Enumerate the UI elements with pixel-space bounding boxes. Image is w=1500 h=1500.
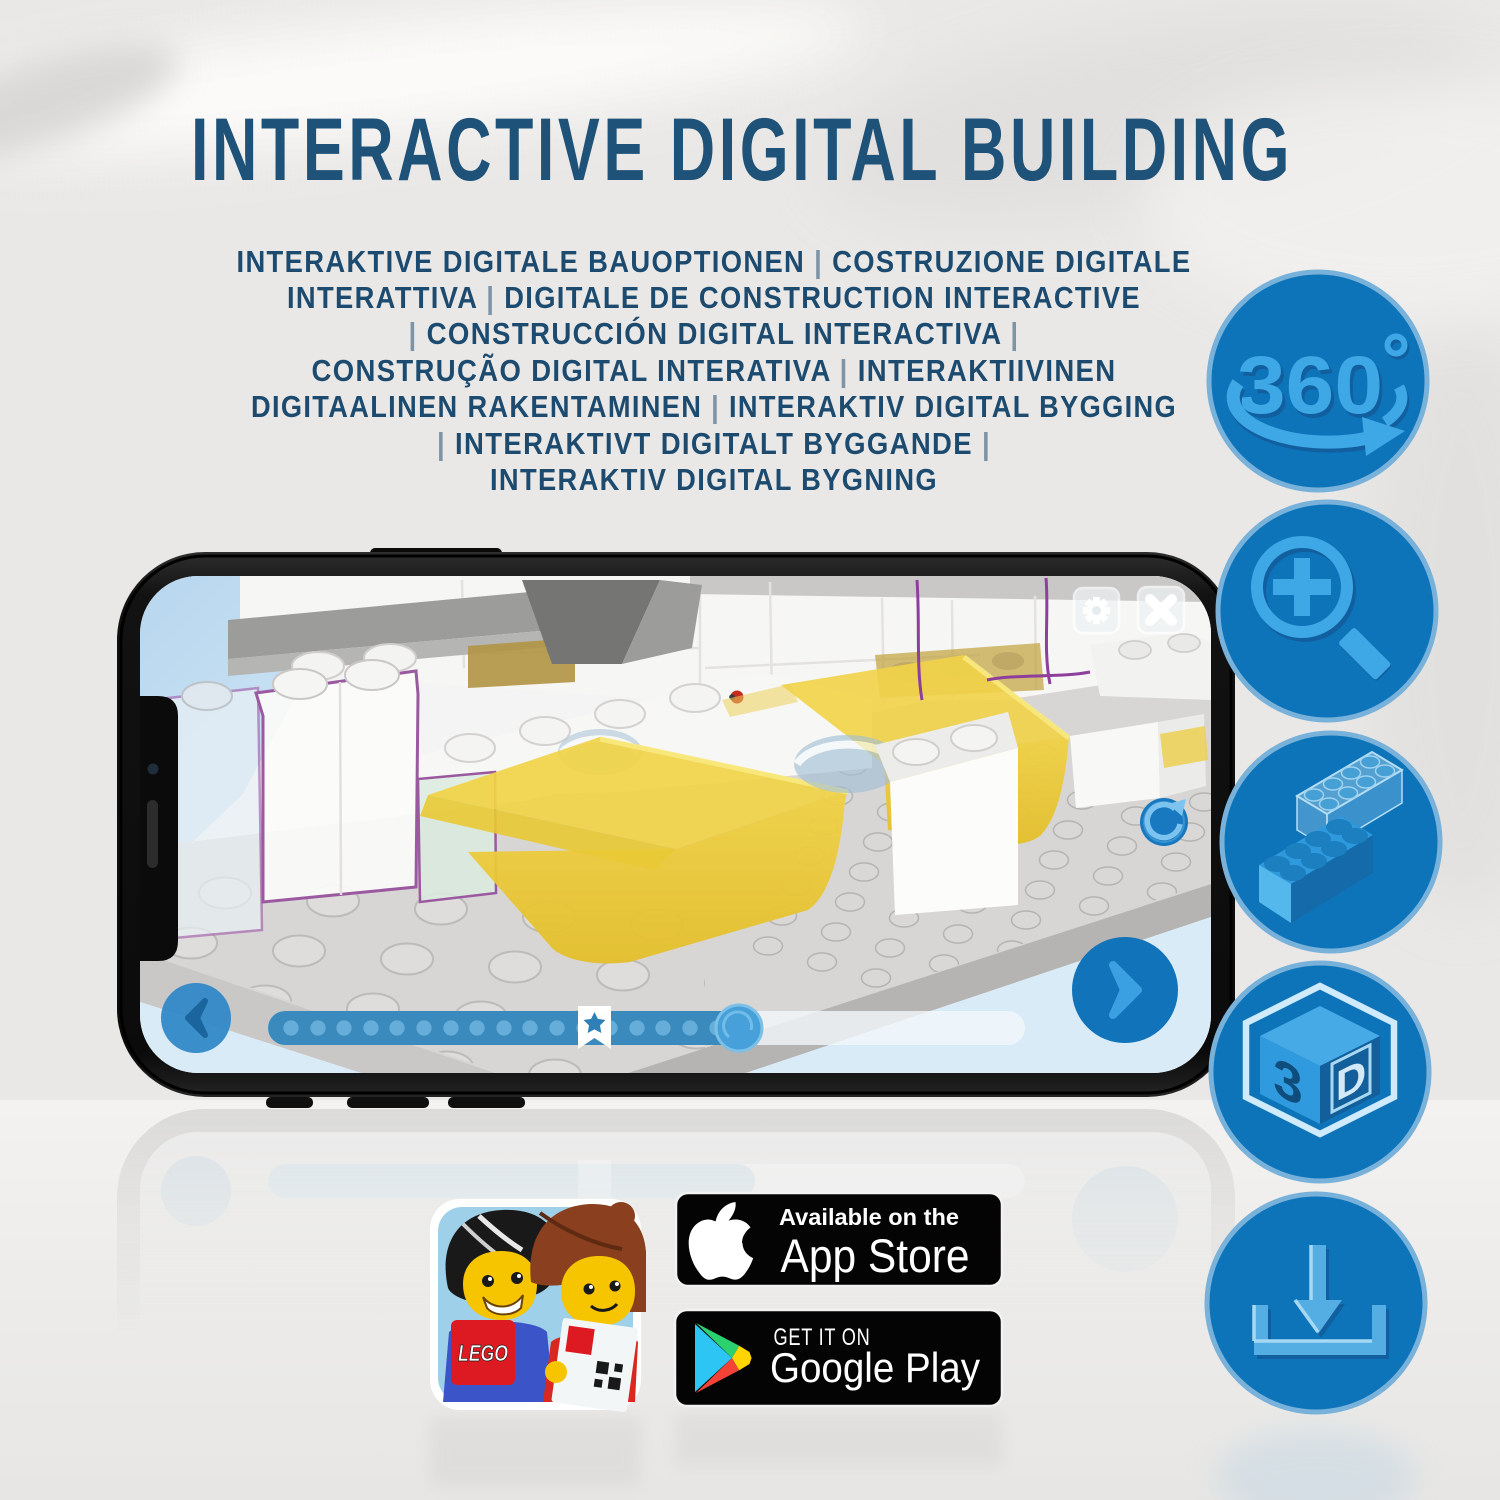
svg-text:INTERAKTIV DIGITAL BYGNING: INTERAKTIV DIGITAL BYGNING — [490, 463, 938, 497]
svg-text:INTERAKTIVE DIGITALE BAUOPTION: INTERAKTIVE DIGITALE BAUOPTIONEN | COSTR… — [237, 245, 1192, 279]
svg-text:360: 360 — [1237, 340, 1383, 431]
svg-text:App Store: App Store — [781, 1229, 970, 1282]
svg-text:INTERATTIVA | DIGITALE DE CONS: INTERATTIVA | DIGITALE DE CONSTRUCTION I… — [287, 281, 1141, 315]
svg-text:CONSTRUÇÃO DIGITAL INTERATIVA: CONSTRUÇÃO DIGITAL INTERATIVA | INTERAKT… — [312, 353, 1117, 388]
svg-text:DIGITAALINEN RAKENTAMINEN | IN: DIGITAALINEN RAKENTAMINEN | INTERAKTIV D… — [251, 390, 1177, 424]
svg-text:Available on the: Available on the — [779, 1204, 959, 1230]
svg-text:| INTERAKTIVT DIGITALT BYGGAND: | INTERAKTIVT DIGITALT BYGGANDE | — [437, 427, 991, 461]
svg-text:Google Play: Google Play — [770, 1344, 980, 1391]
svg-text:LEGO: LEGO — [458, 1340, 508, 1366]
svg-text:| CONSTRUCCIÓN DIGITAL INTERAC: | CONSTRUCCIÓN DIGITAL INTERACTIVA | — [409, 315, 1020, 351]
svg-text:INTERACTIVE DIGITAL BUILDING: INTERACTIVE DIGITAL BUILDING — [191, 99, 1293, 199]
